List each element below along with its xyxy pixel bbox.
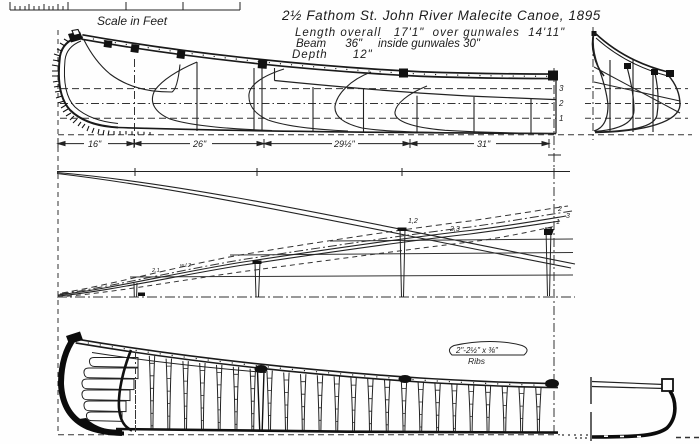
svg-text:29½": 29½" bbox=[333, 139, 356, 149]
svg-text:2½ Fathom St. John River Malec: 2½ Fathom St. John River Malecite Canoe,… bbox=[281, 8, 601, 23]
svg-text:2"-2½" x ⅜": 2"-2½" x ⅜" bbox=[455, 346, 499, 355]
svg-text:w.l.2: w.l.2 bbox=[180, 263, 191, 269]
svg-text:31": 31" bbox=[477, 139, 491, 149]
svg-text:Scale in Feet: Scale in Feet bbox=[97, 14, 168, 28]
svg-text:2.1: 2.1 bbox=[151, 268, 160, 274]
svg-text:16": 16" bbox=[88, 139, 102, 149]
svg-text:1: 1 bbox=[559, 114, 563, 123]
svg-text:3: 3 bbox=[559, 84, 564, 93]
svg-text:2,3: 2,3 bbox=[449, 226, 460, 233]
svg-text:1,2: 1,2 bbox=[408, 218, 418, 225]
svg-text:26": 26" bbox=[192, 139, 207, 149]
svg-text:Depth 12": Depth 12" bbox=[292, 49, 373, 61]
svg-text:1: 1 bbox=[556, 219, 560, 226]
svg-text:Ribs: Ribs bbox=[468, 356, 486, 366]
svg-text:2: 2 bbox=[558, 99, 564, 108]
svg-text:3: 3 bbox=[566, 213, 570, 220]
svg-text:2: 2 bbox=[557, 206, 562, 213]
